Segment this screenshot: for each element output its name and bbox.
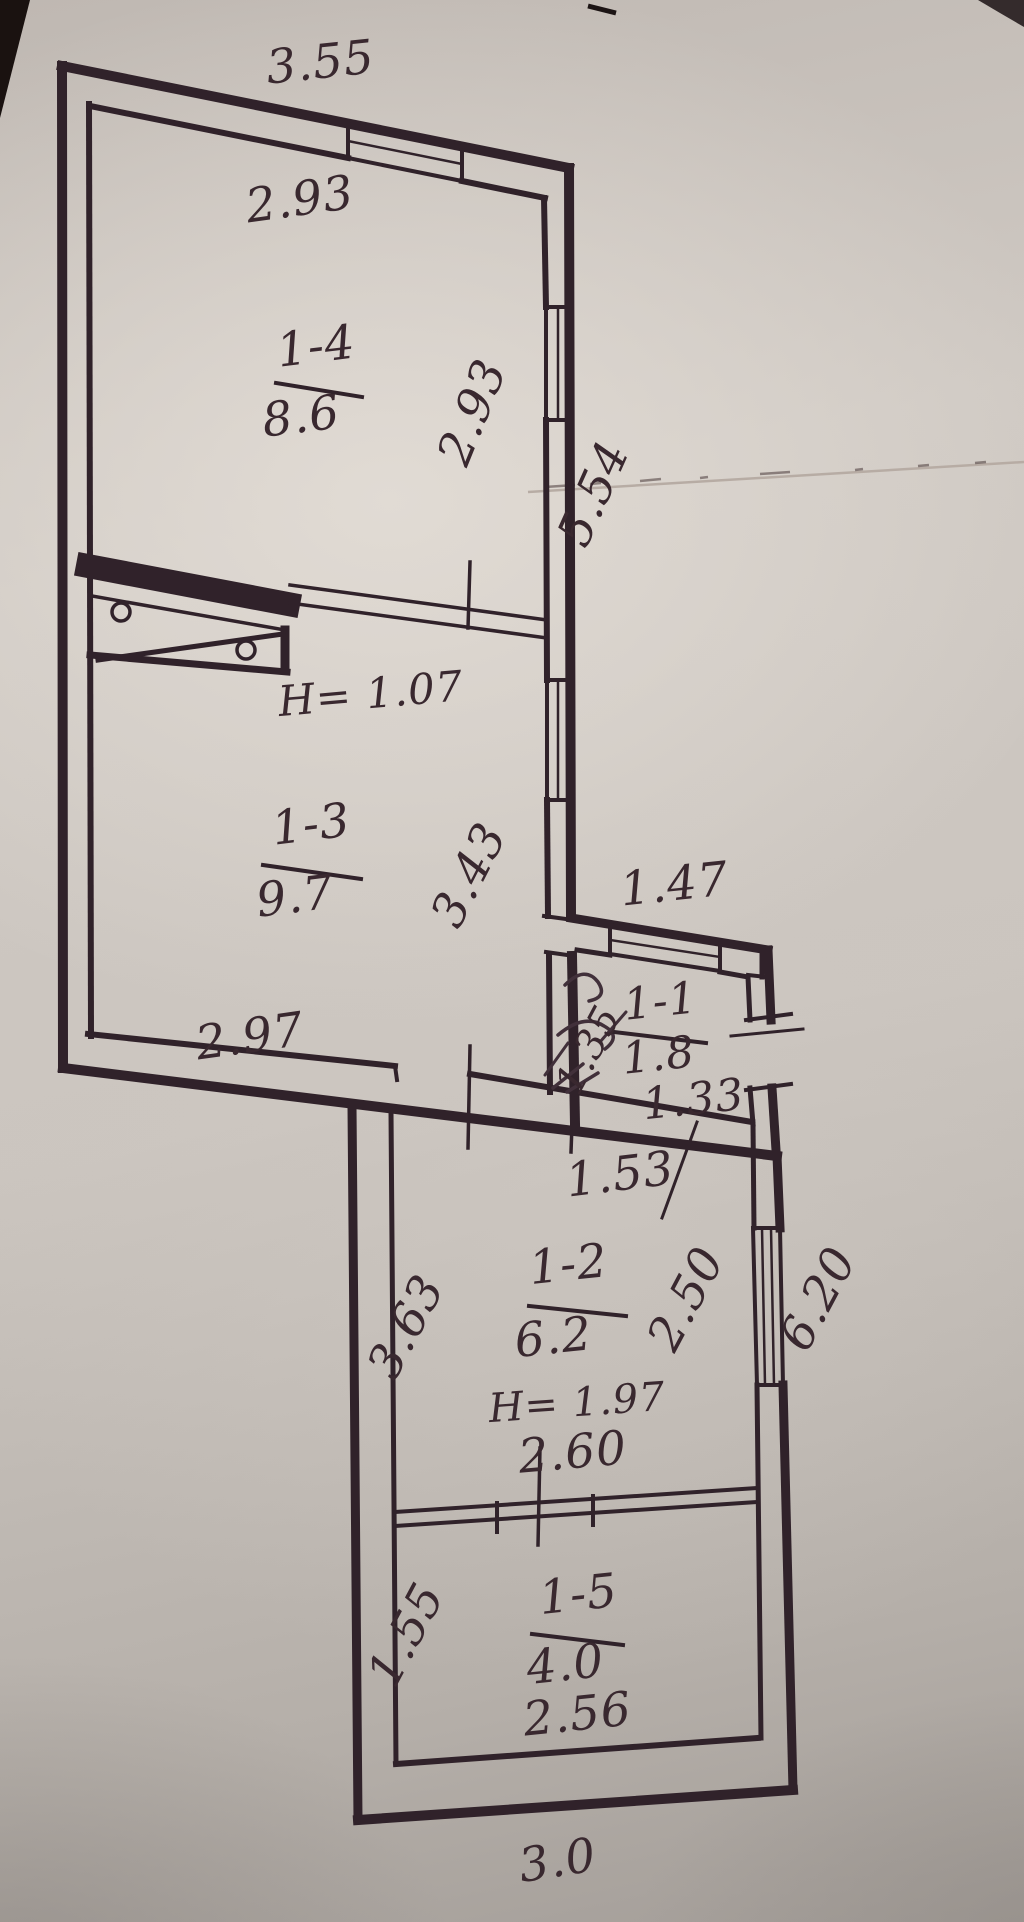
doorway-jamb-bottom-wall (395, 1066, 397, 1080)
wall-left-outer (62, 66, 63, 1068)
room14-area: 8.6 (259, 385, 343, 449)
room11-number: 1-1 (621, 972, 700, 1030)
wall-right-inner-2 (546, 420, 547, 680)
annex-right-outer-2 (772, 1088, 776, 1150)
dim-room11-depth: 1.35 (546, 998, 630, 1102)
height-note-room12: H= 1.97 (486, 1374, 667, 1432)
dim-bottom-overall: 3.0 (515, 1827, 600, 1893)
lower-left-outer (352, 1106, 358, 1820)
dim-room14-depth: 2.93 (426, 352, 518, 474)
partition-12-15-line2 (395, 1502, 757, 1526)
dim-annex-bottom-width: 1.53 (563, 1141, 678, 1209)
junction-tick (571, 1098, 573, 1152)
annex-top-inner-right (720, 972, 748, 977)
partition-thin-line-2 (290, 603, 547, 638)
partition-thin-line-1 (290, 585, 547, 620)
room12-area: 6.2 (512, 1306, 595, 1369)
dim-right-side-upper: 5.54 (547, 433, 641, 555)
window-lower-right-line1 (762, 1228, 765, 1385)
lower-right-inner-2 (757, 1385, 761, 1738)
dim-left-edge-partial: 8 (0, 526, 11, 569)
wall-top-inner-right (462, 181, 545, 198)
labels: 3.55 2.93 1-4 8.6 2.93 5.54 H= 1.07 1-3 … (0, 30, 868, 1894)
dim-right-side-lower: 6.20 (769, 1238, 869, 1360)
annex-right-inner-1 (748, 977, 750, 1020)
photo-corner-shadow-top-left (0, 0, 30, 118)
wall-right-inner-1 (544, 198, 546, 307)
dim-room15-left-depth: 1.55 (357, 1574, 457, 1696)
room13-number: 1-3 (269, 793, 354, 857)
annex-top-inner-left (577, 950, 610, 955)
annex-right-inner-2 (750, 1088, 753, 1124)
window-lower-right (753, 1228, 783, 1385)
partition-room14-room13 (88, 562, 547, 672)
annex-corner-piece2 (748, 975, 766, 977)
lower-bottom-outer (358, 1790, 793, 1820)
height-note-passage: H= 1.07 (275, 661, 465, 726)
annex-door-tick (731, 1029, 803, 1036)
dim-room12-right-depth: 2.50 (636, 1238, 736, 1361)
dim-top-overall: 3.55 (263, 30, 377, 96)
doorway-tick-bottom-wall (468, 1046, 470, 1148)
dim-room12-left-depth: 3.63 (357, 1266, 457, 1388)
room15-number: 1-5 (536, 1563, 620, 1626)
dim-room15-width: 2.56 (519, 1682, 634, 1748)
annex-right-outer-1 (768, 950, 771, 1020)
dim-room13-depth: 3.43 (420, 814, 518, 936)
dim-partition-width: 2.60 (515, 1420, 629, 1484)
room13-area: 9.7 (253, 865, 337, 929)
dim-room13-width: 2.97 (191, 1002, 307, 1072)
room14-number: 1-4 (274, 315, 359, 379)
partition-opening-tick (468, 562, 470, 628)
photo-corner-shadow-top-right (978, 0, 1024, 27)
stove-burner-icon (237, 641, 255, 659)
floor-plan-drawing: 3.55 2.93 1-4 8.6 2.93 5.54 H= 1.07 1-3 … (0, 0, 1024, 1922)
lower-right-outer-1 (777, 1156, 780, 1228)
room12-number: 1-2 (526, 1233, 610, 1296)
dim-room11-width: 1.33 (640, 1069, 747, 1130)
photo-edge-artifacts (0, 0, 1024, 492)
scanned-floor-plan-photo: 3.55 2.93 1-4 8.6 2.93 5.54 H= 1.07 1-3 … (0, 0, 1024, 1922)
window-lower-right-line2 (771, 1228, 774, 1385)
partition-12-15-line1 (395, 1488, 757, 1512)
photo-mark-top (588, 6, 616, 13)
dim-room14-width: 2.93 (241, 165, 357, 235)
dim-annex-top-width: 1.47 (617, 852, 731, 918)
stove-burner-icon (112, 603, 130, 621)
wall-right-inner-3 (547, 800, 548, 916)
partition-thick-segment (88, 566, 288, 604)
lower-right-outer-2 (783, 1385, 793, 1790)
lower-right-inner-1 (753, 1124, 754, 1228)
